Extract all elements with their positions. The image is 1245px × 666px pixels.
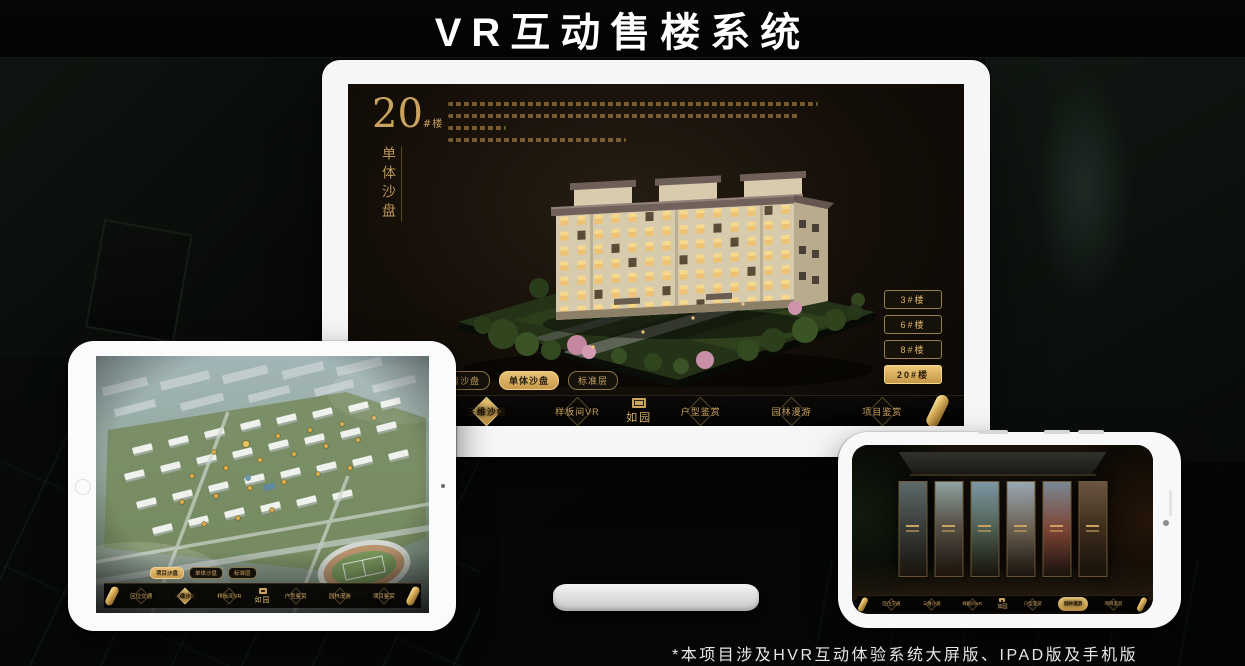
nav-item-floorplans[interactable]: 户型鉴赏 [277,585,315,607]
entrance-beam [899,452,1107,474]
phone-camera [1163,520,1169,526]
phone-navbar: 区位交通 三维沙盘 样板间VR 如园 户型鉴赏 园林漫游 项目鉴赏 [857,595,1148,612]
nav-item-location[interactable]: 区位交通 [122,585,160,607]
nav-item-project-gallery[interactable]: 项目鉴赏 [840,396,924,426]
scroll-icon[interactable] [405,585,421,606]
brand-logo: 如园 [255,588,271,605]
view-tabs: 项目沙盘 单体沙盘 标准层 [430,371,618,390]
block-number: 20 [372,91,423,137]
building-button-20[interactable]: 20#楼 [884,365,942,384]
tab-single-sandtable[interactable]: 单体沙盘 [499,371,559,390]
page-title: VR互动售楼系统 [435,0,811,58]
scroll-icon[interactable] [857,596,869,612]
brand-logo: 如园 [997,598,1007,610]
nav-item-garden-tour[interactable]: 园林漫游 [750,396,834,426]
header-bar: VR互动售楼系统 [0,0,1245,58]
phone-speaker [1169,490,1172,516]
building-3d-model[interactable] [443,142,888,387]
page-root: VR互动售楼系统 20#楼 单体沙盘 [0,0,1245,666]
intro-line [448,126,506,130]
scroll-icon[interactable] [1136,596,1148,612]
nav-item-3d-sandtable[interactable]: 三维沙盘 [917,597,947,611]
nav-item-project-gallery[interactable]: 项目鉴赏 [365,585,403,607]
block-number-title: 20#楼 [372,92,443,136]
phone-side-button [1078,430,1104,434]
seal-icon [632,398,646,408]
phone-device: 区位交通 三维沙盘 样板间VR 如园 户型鉴赏 园林漫游 项目鉴赏 [838,432,1181,628]
tab-standard-floor[interactable]: 标准层 [228,567,257,579]
entrance-beam-edge [910,474,1096,476]
nav-item-floorplans[interactable]: 户型鉴赏 [659,396,743,426]
nav-item-showroom-vr[interactable]: 样板间VR [535,396,619,426]
footnote: *本项目涉及HVR互动体验系统大屏版、IPAD版及手机版 [672,641,1138,665]
seal-icon [999,598,1005,602]
tab-single-sandtable[interactable]: 单体沙盘 [189,567,223,579]
tablet-navbar: 区位交通 三维沙盘 样板间VR 如园 户型鉴赏 园林漫游 项目鉴赏 [104,583,421,608]
nav-item-showroom-vr[interactable]: 样板间VR [957,597,987,611]
monitor-stand-base [553,584,759,611]
block-subtitle-vertical: 单体沙盘 [378,146,402,222]
tab-standard-floor[interactable]: 标准层 [568,371,618,390]
building-button-3[interactable]: 3#楼 [884,290,942,309]
nav-item-floorplans[interactable]: 户型鉴赏 [1018,597,1048,611]
tablet-screen: 项目沙盘 单体沙盘 标准层 区位交通 三维沙盘 样板间VR 如园 户型鉴赏 园林… [96,356,429,613]
tablet-view-tabs: 项目沙盘 单体沙盘 标准层 [150,567,257,579]
seal-icon [259,588,267,594]
phone-side-button [978,430,1008,434]
building-button-6[interactable]: 6#楼 [884,315,942,334]
nav-item-3d-sandtable[interactable]: 三维沙盘 [445,396,529,426]
scroll-icon[interactable] [104,585,120,606]
tablet-home-button [75,479,91,495]
building-button-8[interactable]: 8#楼 [884,340,942,359]
nav-item-garden-tour[interactable]: 园林漫游 [1058,597,1088,611]
intro-line [448,102,818,106]
nav-item-location[interactable]: 区位交通 [876,597,906,611]
aerial-master-plan[interactable] [96,356,429,613]
background-aerial-right [985,57,1245,462]
nav-item-3d-sandtable[interactable]: 三维沙盘 [166,585,204,607]
tablet-camera [441,484,445,488]
intro-line [448,114,800,118]
block-unit: #楼 [423,119,443,130]
nav-item-showroom-vr[interactable]: 样板间VR [210,585,248,607]
tab-project-sandtable[interactable]: 项目沙盘 [150,567,184,579]
background-plaque [85,219,193,343]
scroll-icon[interactable] [924,393,951,426]
nav-item-project-gallery[interactable]: 项目鉴赏 [1099,597,1129,611]
phone-side-button [1044,430,1070,434]
nav-item-garden-tour[interactable]: 园林漫游 [321,585,359,607]
brand-logo: 如园 [626,398,652,425]
tablet-device: 项目沙盘 单体沙盘 标准层 区位交通 三维沙盘 样板间VR 如园 户型鉴赏 园林… [68,341,456,631]
phone-screen: 区位交通 三维沙盘 样板间VR 如园 户型鉴赏 园林漫游 项目鉴赏 [852,445,1153,614]
building-selector: 3#楼 6#楼 8#楼 20#楼 [884,290,942,384]
